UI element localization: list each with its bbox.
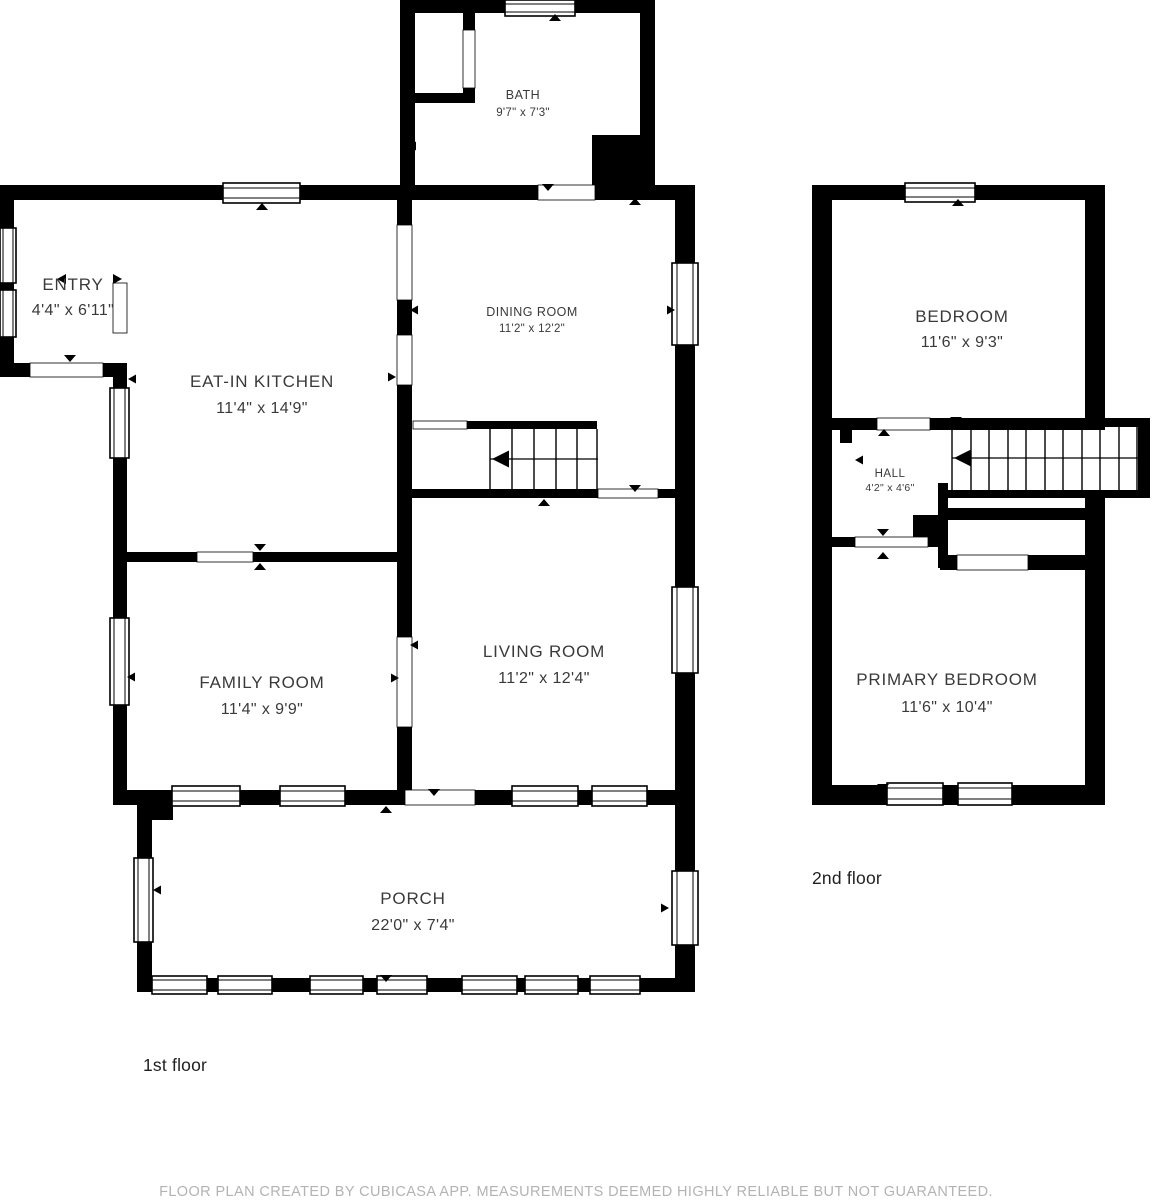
window-symbol [172,786,240,806]
window-symbol [280,786,345,806]
room-dims-hall: 4'2" x 4'6" [865,482,914,494]
room-label-porch: PORCH [380,889,445,908]
walls-first-floor [0,0,695,992]
window-symbol [505,0,575,16]
window-symbol [0,228,16,283]
footer-disclaimer: FLOOR PLAN CREATED BY CUBICASA APP. MEAS… [159,1184,993,1200]
room-label-kitchen: EAT-IN KITCHEN [190,372,334,391]
floor-label-2nd: 2nd floor [812,868,882,888]
stairs-first-floor [490,429,598,489]
window-symbol [134,858,153,942]
room-dims-kitchen: 11'4" x 14'9" [216,400,308,417]
window-symbol [0,290,16,337]
room-dims-porch: 22'0" x 7'4" [371,917,455,934]
room-label-living: LIVING ROOM [483,642,605,661]
window-symbol [110,388,129,458]
second-floor: BEDROOM 11'6" x 9'3" HALL 4'2" x 4'6" PR… [812,183,1150,805]
window-symbol [590,976,640,994]
window-symbol [310,976,363,994]
window-symbol [958,783,1012,805]
room-dims-bath: 9'7" x 7'3" [496,107,550,119]
room-label-dining: DINING ROOM [486,305,578,319]
room-dims-family: 11'4" x 9'9" [221,701,303,718]
room-label-entry: ENTRY [42,275,103,294]
room-dims-entry: 4'4" x 6'11" [32,302,114,319]
room-dims-primary-bedroom: 11'6" x 10'4" [901,699,993,716]
room-dims-dining: 11'2" x 12'2" [499,323,565,335]
window-symbol [905,183,975,202]
window-symbol [525,976,578,994]
window-symbol [223,183,300,203]
room-label-bath: BATH [506,88,540,102]
window-symbol [462,976,517,994]
stairs-direction-arrow [492,451,509,468]
room-label-bedroom: BEDROOM [915,307,1008,326]
window-symbol [592,786,647,806]
window-symbol [218,976,272,994]
room-label-family: FAMILY ROOM [199,673,324,692]
stairs-direction-arrow [954,450,971,467]
first-floor: BATH 9'7" x 7'3" ENTRY 4'4" x 6'11" EAT-… [0,0,698,994]
room-dims-bedroom: 11'6" x 9'3" [921,334,1003,351]
window-symbol [672,263,698,345]
window-symbol [512,786,578,806]
window-symbol [672,587,698,673]
window-symbol [152,976,207,994]
floor-plan-svg: BATH 9'7" x 7'3" ENTRY 4'4" x 6'11" EAT-… [0,0,1152,1200]
room-label-hall: HALL [875,468,906,480]
room-dims-living: 11'2" x 12'4" [498,670,590,687]
window-symbol [887,783,943,805]
room-label-primary-bedroom: PRIMARY BEDROOM [856,670,1037,689]
window-symbol [110,618,129,705]
floor-label-1st: 1st floor [143,1055,207,1075]
window-symbol [672,871,698,945]
floor-plan-page: BATH 9'7" x 7'3" ENTRY 4'4" x 6'11" EAT-… [0,0,1152,1200]
stairs-second-floor [952,427,1138,490]
